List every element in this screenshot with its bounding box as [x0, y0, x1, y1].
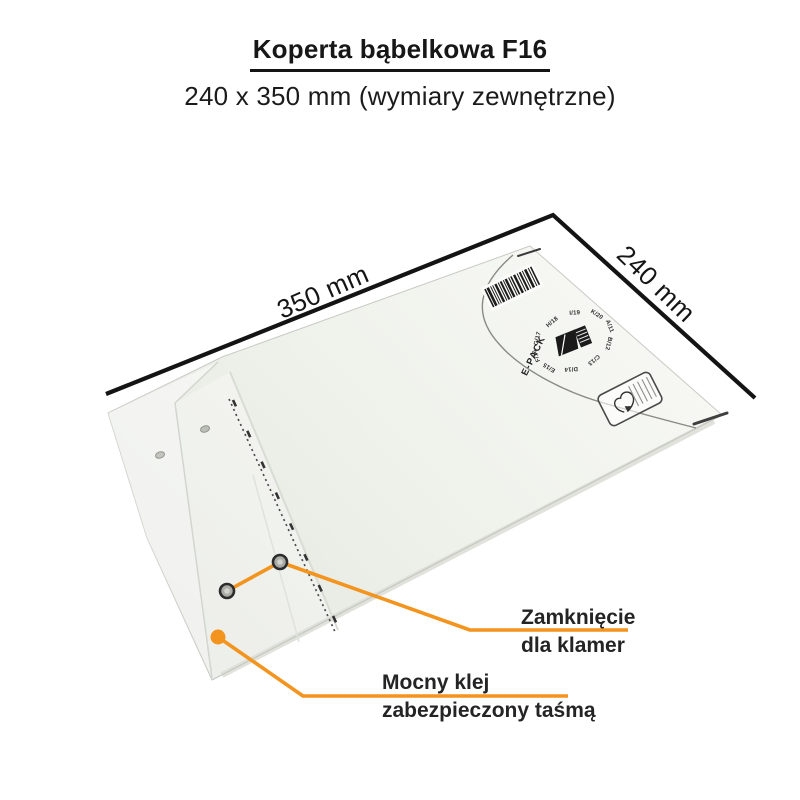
glue-annotation-line2: zabezpieczony taśmą — [382, 697, 596, 725]
corner-seam — [694, 413, 727, 424]
brand-label: E-PACK — [519, 334, 548, 377]
tip-fold-mark — [518, 249, 540, 256]
size-stamp: A/11 B/12 C/13 D/14 E/15 F/16 G/17 H/18 … — [523, 298, 623, 385]
header: Koperta bąbelkowa F16 240 x 350 mm (wymi… — [0, 34, 800, 112]
perforation-dotted-line — [229, 399, 336, 634]
size-code: H/18 — [546, 316, 561, 330]
recycle-label — [596, 371, 663, 428]
width-dimension-label: 350 mm — [272, 258, 373, 325]
product-image: Koperta bąbelkowa F16 240 x 350 mm (wymi… — [0, 0, 800, 800]
size-stamp-ring: A/11 B/12 C/13 D/14 E/15 F/16 G/17 H/18 … — [523, 298, 623, 385]
clasp-eyelets — [220, 555, 287, 598]
clasp-annotation-line1: Zamknięcie — [521, 604, 635, 632]
glue-point-marker — [211, 630, 226, 645]
size-code: K/20 — [589, 309, 604, 321]
size-code: F/16 — [531, 348, 542, 363]
height-dimension-label: 240 mm — [610, 239, 701, 329]
glue-annotation: Mocny klej zabezpieczony taśmą — [382, 669, 596, 725]
page-subtitle: 240 x 350 mm (wymiary zewnętrzne) — [0, 81, 800, 112]
flap-outer-edge — [175, 362, 218, 678]
flap-fold-edge — [230, 372, 338, 630]
recycle-label-text-lines — [628, 377, 657, 406]
size-code: C/13 — [586, 353, 601, 367]
size-code: A/11 — [604, 319, 615, 334]
size-code: D/14 — [564, 365, 578, 372]
perforation-text-marks — [233, 400, 340, 631]
page-title: Koperta bąbelkowa F16 — [250, 34, 551, 72]
recycle-icon — [612, 390, 638, 415]
stamp-logo — [552, 325, 592, 356]
flap-crease — [253, 475, 299, 642]
back-envelope — [108, 362, 218, 678]
clasp-annotation: Zamknięcie dla klamer — [521, 604, 635, 660]
envelope-flap — [175, 372, 338, 680]
size-code: E/15 — [542, 361, 557, 373]
size-code: B/12 — [603, 336, 612, 351]
barcode — [480, 263, 544, 312]
bottom-edge-line — [212, 415, 722, 680]
glue-annotation-line1: Mocny klej — [382, 669, 596, 697]
clasp-annotation-line2: dla klamer — [521, 632, 635, 660]
size-code: I/19 — [569, 310, 581, 317]
hanging-holes — [155, 425, 211, 460]
bottom-edge-shading — [222, 421, 714, 675]
size-code: G/17 — [533, 331, 542, 346]
